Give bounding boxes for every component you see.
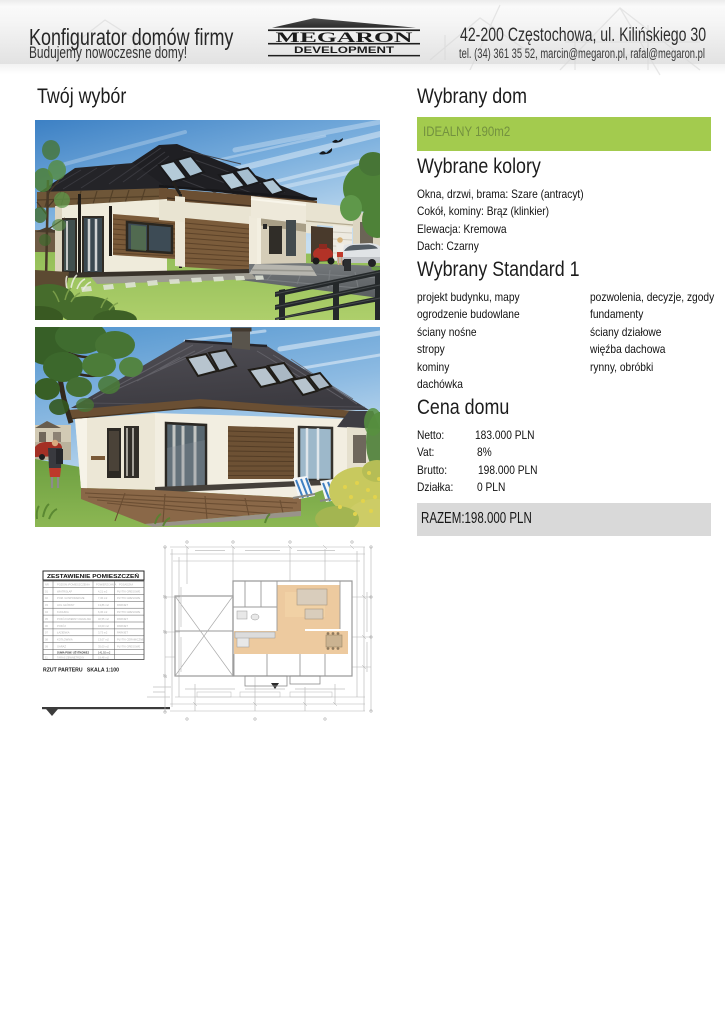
svg-text:19,48 m2: 19,48 m2 [98, 656, 109, 660]
svg-text:7,36 m2: 7,36 m2 [98, 596, 108, 600]
svg-text:PARKIET: PARKIET [117, 631, 128, 635]
svg-text:4,21 m2: 4,21 m2 [98, 589, 108, 593]
svg-text:13,86 m2: 13,86 m2 [98, 603, 109, 607]
svg-text:NR: NR [45, 583, 49, 587]
svg-text:KUCHNIA: KUCHNIA [57, 610, 69, 614]
svg-text:PŁYTKI GRESOWE: PŁYTKI GRESOWE [117, 645, 140, 649]
svg-text:WIATROŁAP: WIATROŁAP [57, 589, 72, 593]
svg-text:PARKIET: PARKIET [117, 617, 128, 621]
svg-text:40,55 m2: 40,55 m2 [98, 617, 109, 621]
svg-text:35,00 m2: 35,00 m2 [98, 645, 109, 649]
svg-text:6,36 m2: 6,36 m2 [98, 610, 108, 614]
svg-text:PŁYTKI GRESOWE: PŁYTKI GRESOWE [117, 610, 140, 614]
svg-text:POZIOM./POMIESZCZENIA: POZIOM./POMIESZCZENIA [57, 583, 90, 587]
svg-text:KOTŁOWNIA: KOTŁOWNIA [57, 638, 73, 642]
svg-text:TARAS ZEWNĘTRZNY: TARAS ZEWNĘTRZNY [57, 656, 84, 660]
svg-text:ZESTAWIENIE POMIESZCZEŃ: ZESTAWIENIE POMIESZCZEŃ [47, 572, 139, 580]
svg-text:3,73 m2: 3,73 m2 [98, 631, 108, 635]
svg-text:PŁYTKI CERAMICZNE: PŁYTKI CERAMICZNE [117, 638, 144, 642]
svg-text:POSADZKA: POSADZKA [119, 583, 133, 587]
svg-text:DEVELOPMENT: DEVELOPMENT [294, 45, 394, 56]
svg-text:RZUT PARTERU SKALA 1:100: RZUT PARTERU SKALA 1:100 [43, 668, 119, 674]
svg-text:13,07 m2: 13,07 m2 [98, 638, 109, 642]
svg-text:PARKIET: PARKIET [117, 624, 128, 628]
svg-text:PARKIET: PARKIET [117, 603, 128, 607]
svg-text:ŁAZIENKA: ŁAZIENKA [57, 631, 70, 635]
svg-text:PŁYTKI GRESOWE: PŁYTKI GRESOWE [117, 596, 140, 600]
svg-text:141,92 m2: 141,92 m2 [98, 650, 111, 654]
svg-text:16,00 m2: 16,00 m2 [98, 624, 109, 628]
svg-text:POM. GOSPODARCZE: POM. GOSPODARCZE [57, 596, 85, 600]
svg-text:POWIERZCHNIA: POWIERZCHNIA [96, 583, 116, 587]
svg-text:PŁYTKI GRESOWE: PŁYTKI GRESOWE [117, 589, 140, 593]
